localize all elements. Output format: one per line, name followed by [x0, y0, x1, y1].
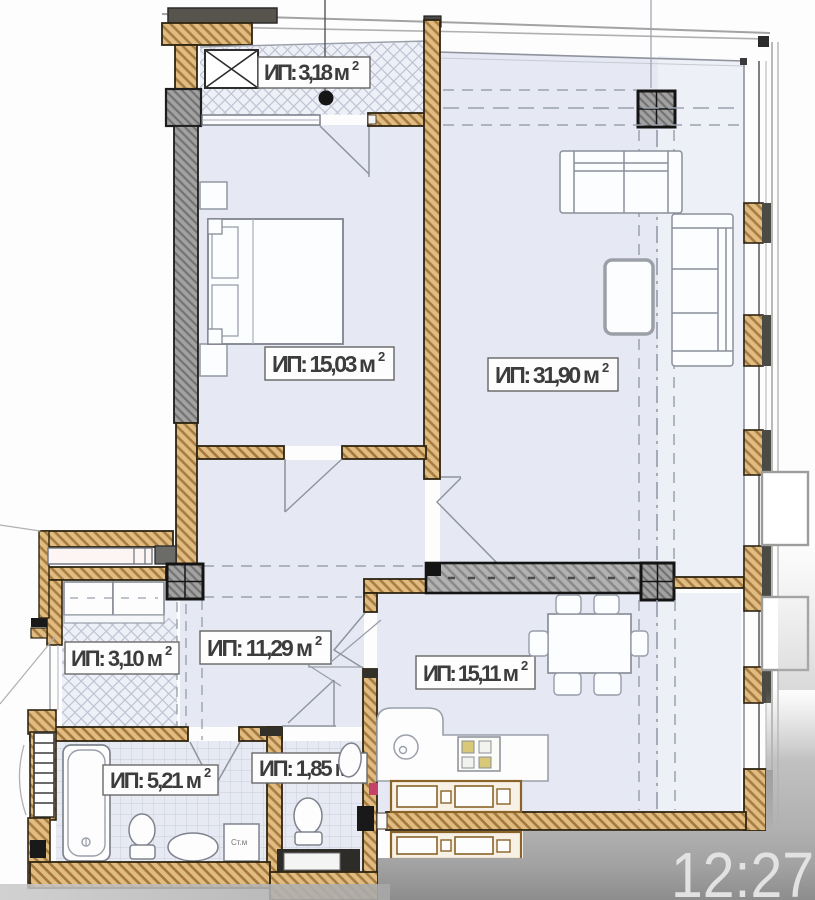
svg-text:ИП: 15,03 м: ИП: 15,03 м	[272, 351, 376, 377]
svg-text:ИП: 11,29 м: ИП: 11,29 м	[207, 635, 313, 661]
svg-text:ИП: 5,21 м: ИП: 5,21 м	[110, 768, 202, 793]
svg-text:ИП: 1,85 м: ИП: 1,85 м	[259, 756, 351, 781]
svg-text:ИП: 31,90 м: ИП: 31,90 м	[495, 362, 600, 388]
svg-text:2: 2	[602, 360, 609, 375]
svg-text:ИП: 3,18 м: ИП: 3,18 м	[264, 60, 350, 85]
svg-text:2: 2	[165, 643, 172, 658]
svg-text:2: 2	[204, 765, 211, 780]
svg-text:ИП: 15,11 м: ИП: 15,11 м	[423, 661, 519, 686]
svg-text:Ст.м: Ст.м	[231, 838, 247, 847]
svg-text:2: 2	[352, 58, 359, 73]
svg-text:12:27: 12:27	[671, 839, 814, 900]
svg-text:2: 2	[315, 633, 322, 648]
svg-text:2: 2	[378, 349, 385, 364]
svg-text:ИП: 3,10 м: ИП: 3,10 м	[71, 646, 163, 671]
svg-text:2: 2	[521, 658, 528, 673]
